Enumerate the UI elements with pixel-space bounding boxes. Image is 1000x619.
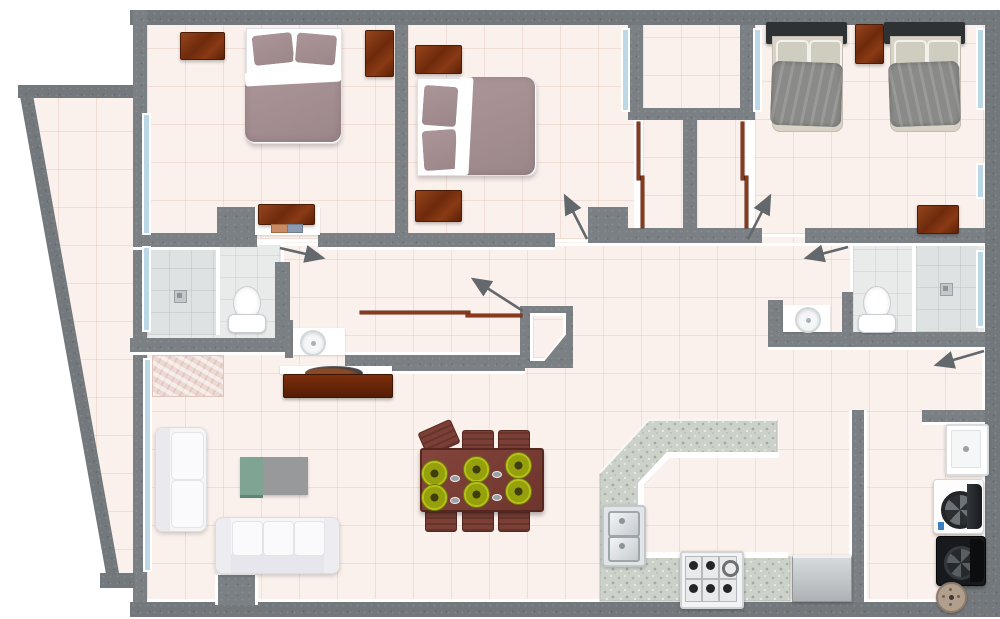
closet-left-sliding-door-icon [637, 122, 640, 180]
utility-sink-drain-icon [963, 446, 969, 452]
green-plate [421, 460, 448, 487]
tv-table-teal-section [240, 457, 263, 498]
toilet-base [858, 314, 896, 333]
wall-shaft-left [628, 25, 643, 120]
green-plate [505, 452, 532, 479]
wall-shaft-bottom [628, 108, 755, 120]
gas-stove [680, 551, 744, 609]
toilet-base [228, 314, 266, 333]
wall-bedroom2-bottom [408, 233, 555, 250]
bedroom1-dresser-right [365, 30, 394, 77]
closet-right-sliding-door-icon [741, 122, 744, 180]
sofa-cushion [263, 521, 294, 556]
sofa-cushion [232, 521, 263, 556]
sofa-back [231, 554, 324, 573]
sofa-cushion [294, 521, 325, 556]
shower-drain-icon [174, 290, 187, 303]
sofa [215, 517, 340, 574]
bathroom-left-window [142, 246, 151, 332]
bedroom1-window [142, 113, 151, 235]
balcony-glass-door [143, 358, 152, 572]
basket-dot [957, 595, 960, 598]
floor-plan [0, 0, 1000, 619]
blanket [770, 61, 843, 127]
twin-nightstand [855, 24, 884, 64]
loveseat-back [156, 428, 170, 531]
cutlery-icon [450, 497, 460, 504]
wall-vanity-right-bottom [768, 332, 853, 350]
cutlery-icon [450, 475, 460, 482]
twin-bedroom-window-lower [976, 163, 985, 199]
wall-laundry-top [922, 410, 985, 425]
wall-bathroom-left-bottom [130, 338, 290, 355]
wall-vanity-left-edge [285, 320, 293, 358]
balcony-wall-bottom-jog [100, 573, 135, 588]
twin-bed-left [770, 22, 843, 130]
shower-drain-icon [940, 283, 953, 296]
bedroom2-double-bed [417, 78, 535, 174]
wall-living-room-pier [218, 575, 255, 605]
vanity-right-round-sink [795, 307, 821, 333]
burner [722, 560, 739, 577]
loveseat [155, 427, 207, 532]
loveseat-cushion [171, 432, 204, 480]
wall-bedroom1-stub [217, 207, 257, 247]
outer-wall-right [985, 10, 1000, 617]
sink-faucet-icon [619, 543, 625, 549]
bathroom-right-divider [912, 245, 916, 332]
pillow [293, 30, 340, 68]
outer-wall-bottom [130, 602, 1000, 617]
wall-kitchen-service-divider [852, 410, 864, 602]
bedroom1-double-bed [246, 28, 340, 142]
sofa-armrest [324, 518, 339, 573]
wall-bathroom-right-left-lower [842, 292, 853, 347]
pillow [249, 30, 296, 68]
twin-bed-right [888, 22, 961, 130]
green-plate [421, 484, 448, 511]
bedroom1-desk [258, 204, 315, 225]
burner [689, 584, 698, 593]
washer-open-door [967, 484, 982, 529]
wall-closets-bottom [628, 228, 762, 246]
twin-dresser-bottom [917, 205, 959, 234]
burner [723, 584, 732, 593]
kitchen-double-sink [602, 505, 646, 567]
cutlery-icon [492, 494, 502, 501]
green-plate [463, 481, 490, 508]
sink-basin [608, 536, 640, 562]
loveseat-cushion [171, 480, 204, 528]
pillow [420, 83, 461, 130]
shaft-window-twin-side [753, 28, 762, 112]
wall-bedroom1-bottom-right [318, 233, 408, 250]
dryer-open-door [970, 539, 984, 582]
basket-dot [942, 595, 945, 598]
wall-bedroom1-bedroom2-divider [395, 25, 408, 247]
desk-papers [287, 224, 303, 233]
dryer-machine [936, 536, 986, 586]
burner [706, 584, 715, 593]
tv-console [283, 374, 393, 398]
wall-bathroom-right-bottom [853, 332, 985, 350]
living-room-rug [152, 355, 224, 397]
sofa-armrest [216, 518, 231, 573]
basket-dot [949, 603, 952, 606]
bedroom2-nightstand-upper [415, 45, 462, 74]
bedroom1-dresser-top [180, 32, 225, 60]
stainless-appliance [792, 555, 852, 602]
green-plate [463, 456, 490, 483]
sink-basin [608, 511, 640, 537]
basket-dot [949, 595, 954, 600]
washer-label-icon [938, 522, 944, 530]
hall-closet-sliding-door-icon [466, 314, 522, 317]
bathroom-left-divider [216, 245, 220, 335]
burner [689, 561, 698, 570]
outer-wall-top [130, 10, 997, 25]
closet-left-sliding-door-icon [641, 176, 644, 228]
bathroom-left-toilet [228, 286, 264, 336]
basket-dot [949, 588, 952, 591]
wall-vanity-right-edge [768, 300, 783, 335]
hall-closet-sliding-door-icon [360, 311, 470, 314]
bathroom-right-toilet [858, 286, 894, 334]
wall-closet-center [683, 120, 697, 243]
twin-bedroom-window-upper [976, 28, 985, 110]
cutlery-icon [492, 471, 502, 478]
utility-sink [945, 424, 989, 476]
vanity-left-round-sink [300, 330, 326, 356]
balcony-wall-top [18, 85, 133, 98]
shaft-floor [640, 22, 749, 117]
wall-bedroom2-door-stub [588, 207, 628, 243]
bedroom2-nightstand-lower [415, 190, 462, 222]
closet-right-sliding-door-icon [745, 176, 748, 228]
burner [706, 561, 715, 570]
tv-table [240, 457, 308, 495]
green-plate [505, 478, 532, 505]
blanket [888, 61, 961, 127]
bathroom-right-window [976, 250, 985, 328]
sink-faucet-icon [619, 518, 625, 524]
washing-machine [933, 479, 984, 534]
round-basket [936, 582, 967, 613]
shaft-window-bedroom2-side [621, 28, 630, 112]
